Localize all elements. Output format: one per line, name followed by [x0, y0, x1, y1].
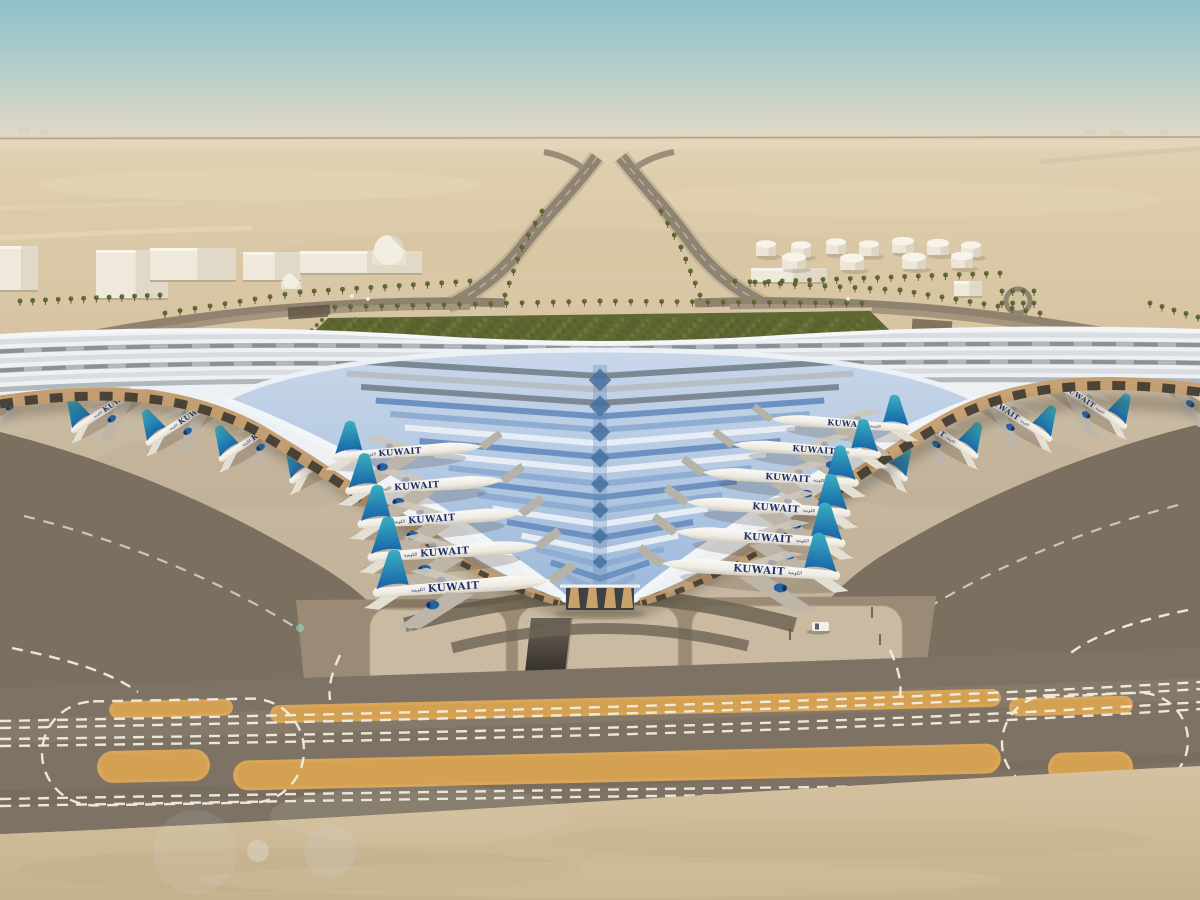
landscape-shrub [503, 323, 508, 328]
landscape-shrub [746, 328, 750, 332]
landscape-shrub [514, 324, 519, 329]
landscape-shrub [531, 328, 535, 332]
airline-arabic-wordmark: الكويتية [411, 587, 425, 594]
car [350, 294, 354, 298]
landscape-shrub [435, 330, 440, 335]
landscape-shrub [646, 318, 650, 322]
landscape-shrub [761, 330, 766, 335]
painted-island [97, 749, 211, 784]
landscape-shrub [488, 323, 494, 329]
landscape-shrub [593, 317, 598, 322]
landscape-shrub [535, 329, 540, 334]
landscape-shrub [414, 324, 420, 330]
landscape-shrub [456, 317, 462, 323]
warehouse-building [954, 281, 982, 298]
landscape-shrub [457, 329, 461, 333]
landscape-shrub [798, 328, 803, 333]
landscape-shrub [357, 319, 361, 323]
landscape-shrub [482, 317, 487, 322]
landscape-shrub [835, 318, 840, 323]
landscape-shrub [525, 324, 531, 330]
landscape-shrub [583, 328, 588, 333]
landscape-shrub [672, 329, 676, 333]
painted-island [109, 699, 233, 719]
landscape-shrub [634, 319, 640, 325]
landscape-shrub [572, 319, 576, 323]
landscape-shrub [498, 328, 503, 333]
landscape-shrub [618, 335, 624, 341]
landscape-shrub [567, 335, 572, 340]
landscape-shrub [682, 333, 687, 338]
landscape-shrub [803, 323, 808, 328]
landscape-shrub [641, 334, 646, 339]
landscape-shrub [463, 324, 467, 328]
landscape-shrub [331, 319, 336, 324]
landscape-shrub [661, 327, 667, 333]
landscape-shrub [520, 329, 526, 335]
landscape-shrub [577, 325, 582, 330]
landscape-shrub [593, 335, 597, 339]
landscape-shrub [567, 324, 571, 328]
landscape-shrub [493, 333, 498, 338]
landscape-shrub [703, 323, 709, 329]
landscape-shrub [561, 329, 565, 333]
landscape-shrub [336, 325, 341, 330]
landscape-shrub [540, 324, 545, 329]
landscape-shrub [745, 319, 751, 325]
landscape-shrub [620, 318, 625, 323]
landscape-shrub [394, 328, 399, 333]
landscape-shrub [641, 323, 645, 327]
landscape-shrub [720, 320, 724, 324]
landscape-shrub [808, 317, 813, 322]
landscape-shrub [789, 324, 793, 328]
landscape-shrub [341, 319, 346, 324]
landscape-shrub [708, 318, 714, 324]
landscape-shrub [604, 333, 609, 338]
landscape-shrub [692, 334, 698, 340]
landscape-shrub [546, 330, 551, 335]
airline-arabic-wordmark: الكويتية [788, 570, 802, 577]
landscape-shrub [861, 318, 865, 322]
landscape-shrub [794, 319, 798, 323]
landscape-shrub [840, 324, 845, 329]
landscape-shrub [629, 324, 635, 330]
landscape-shrub [729, 324, 734, 329]
landscape-shrub [556, 334, 560, 338]
landscape-shrub [419, 319, 425, 325]
landscape-shrub [399, 323, 404, 328]
warehouse-building [150, 248, 236, 282]
landscape-shrub [578, 333, 583, 338]
landscape-shrub [687, 328, 692, 333]
landscape-shrub [604, 325, 608, 329]
landscape-shrub [368, 320, 373, 325]
landscape-shrub [787, 330, 792, 335]
landscape-shrub [483, 328, 489, 334]
rendering-canvas: KUWAITالكويتيةKUWAITالكويتيةKUWAITالكويت… [0, 0, 1200, 900]
landscape-shrub [755, 324, 760, 329]
landscape-shrub [446, 327, 452, 333]
landscape-shrub [477, 323, 482, 328]
airport-aerial-rendering: KUWAITالكويتيةKUWAITالكويتيةKUWAITالكويت… [0, 0, 1200, 900]
landscape-shrub [740, 324, 746, 330]
landscape-shrub [315, 323, 319, 327]
landscape-shrub [715, 325, 719, 329]
landscape-shrub [772, 327, 778, 333]
airline-arabic-wordmark: الكويتية [813, 477, 825, 483]
terminal-entrance [554, 586, 646, 619]
landscape-shrub [389, 325, 393, 329]
landscape-shrub [551, 325, 556, 330]
landscape-shrub [394, 320, 398, 324]
landscape-shrub [646, 329, 651, 334]
car [366, 297, 370, 301]
landscape-shrub [667, 334, 671, 338]
landscape-shrub [819, 325, 823, 329]
landscape-shrub [709, 330, 713, 334]
landscape-shrub [468, 319, 472, 323]
landscape-shrub [377, 323, 383, 329]
landscape-shrub [757, 318, 761, 322]
landscape-shrub [630, 333, 634, 337]
sky [0, 0, 1200, 140]
landscape-shrub [783, 329, 787, 333]
landscape-shrub [752, 323, 756, 327]
landscape-shrub [405, 318, 410, 323]
landscape-shrub [666, 322, 672, 328]
landscape-shrub [657, 319, 662, 324]
warehouse-building [0, 246, 38, 292]
landscape-shrub [824, 328, 829, 333]
landscape-shrub [671, 317, 677, 323]
landscape-shrub [509, 318, 514, 323]
landscape-shrub [750, 329, 755, 334]
landscape-shrub [472, 328, 477, 333]
landscape-shrub [526, 333, 530, 337]
landscape-shrub [692, 323, 697, 328]
landscape-shrub [598, 330, 602, 334]
landscape-shrub [504, 334, 509, 339]
landscape-shrub [572, 330, 577, 335]
landscape-shrub [542, 318, 546, 322]
landscape-shrub [829, 323, 834, 328]
landscape-shrub [698, 328, 704, 334]
car [846, 297, 850, 301]
landscape-shrub [362, 325, 367, 330]
landscape-shrub [509, 329, 514, 334]
landscape-shrub [382, 318, 388, 324]
landscape-shrub [798, 320, 803, 325]
landscape-shrub [440, 325, 445, 330]
landscape-shrub [678, 324, 682, 328]
landscape-shrub [451, 322, 457, 328]
landscape-shrub [724, 329, 729, 334]
landscape-shrub [856, 323, 860, 327]
landscape-shrub [537, 323, 541, 327]
landscape-shrub [583, 320, 588, 325]
landscape-shrub [734, 318, 739, 323]
landscape-shrub [683, 319, 687, 323]
landscape-shrub [766, 325, 771, 330]
landscape-shrub [624, 329, 630, 335]
landscape-shrub [519, 318, 524, 323]
landscape-shrub [782, 317, 788, 323]
landscape-shrub [655, 333, 661, 339]
landscape-shrub [420, 328, 424, 332]
airline-arabic-wordmark: الكويتية [870, 424, 881, 429]
landscape-shrub [546, 319, 551, 324]
landscape-shrub [735, 329, 741, 335]
landscape-shrub [614, 323, 619, 328]
landscape-shrub [588, 323, 593, 328]
landscape-shrub [530, 334, 535, 339]
airline-arabic-wordmark: الكويتية [802, 507, 815, 513]
landscape-shrub [556, 319, 561, 324]
landscape-shrub [635, 328, 639, 332]
landscape-shrub [866, 324, 871, 329]
landscape-shrub [320, 318, 324, 322]
landscape-shrub [352, 324, 356, 328]
landscape-shrub [541, 335, 546, 340]
landscape-shrub [426, 323, 430, 327]
landscape-shrub [609, 328, 614, 333]
landscape-shrub [445, 319, 450, 324]
landscape-shrub [530, 319, 536, 325]
landscape-shrub [514, 335, 520, 341]
landscape-shrub [325, 324, 330, 329]
landscape-shrub [761, 319, 766, 324]
landscape-shrub [431, 318, 435, 322]
landscape-shrub [771, 319, 776, 324]
airline-arabic-wordmark: الكويتية [796, 538, 809, 545]
landscape-shrub [697, 317, 702, 322]
airline-arabic-wordmark: الكويتية [404, 552, 417, 559]
landscape-shrub [792, 325, 797, 330]
landscape-shrub [651, 324, 656, 329]
landscape-shrub [493, 318, 499, 324]
landscape-shrub [824, 320, 828, 324]
landscape-shrub [467, 333, 472, 338]
landscape-shrub [777, 322, 783, 328]
landscape-shrub [845, 318, 850, 323]
landscape-shrub [609, 320, 613, 324]
